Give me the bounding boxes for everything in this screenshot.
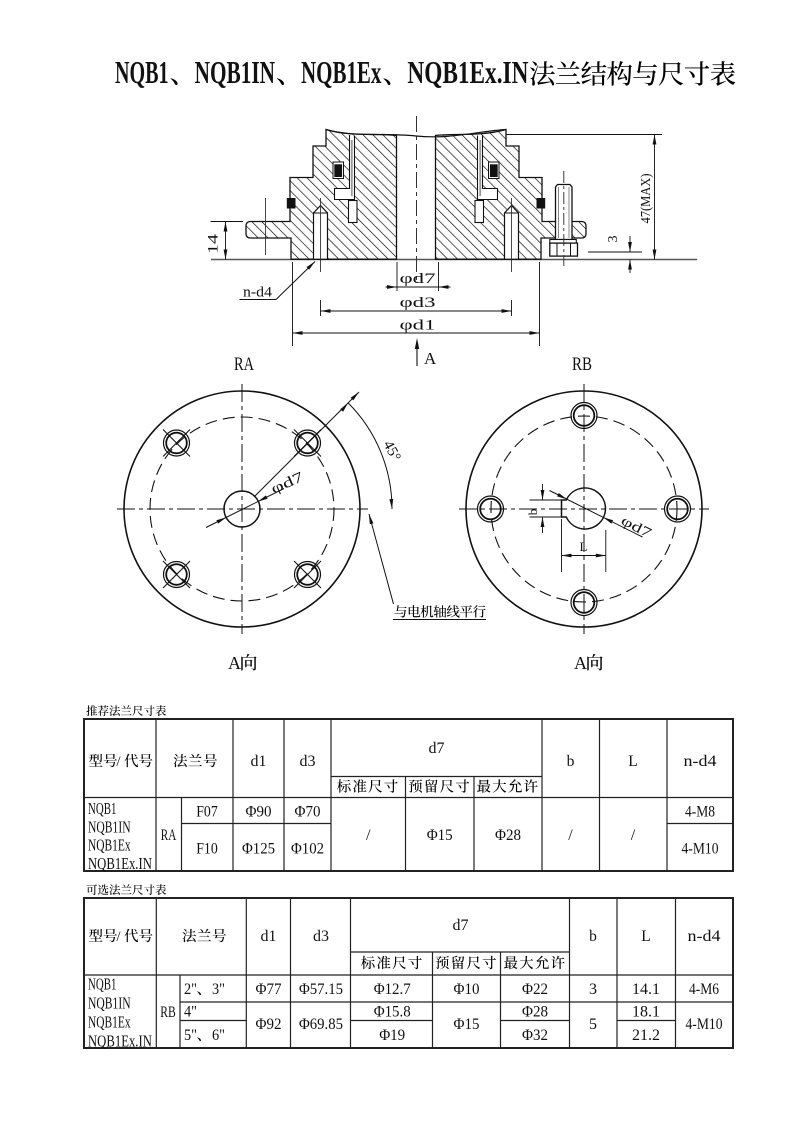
svg-text:4-M8: 4-M8 — [685, 804, 715, 821]
svg-text:Φ70: Φ70 — [295, 804, 321, 821]
svg-text:φd3: φd3 — [400, 295, 436, 311]
svg-text:3": 3" — [212, 981, 225, 998]
svg-text:Φ28: Φ28 — [495, 827, 521, 844]
svg-text:4-M10: 4-M10 — [686, 1016, 723, 1033]
svg-text:/: / — [631, 827, 636, 844]
svg-text:φd1: φd1 — [400, 318, 436, 334]
svg-text:Φ102: Φ102 — [291, 841, 324, 858]
svg-text:5": 5" — [184, 1027, 197, 1044]
svg-text:14.1: 14.1 — [632, 981, 660, 998]
svg-text:Φ57.15: Φ57.15 — [299, 981, 343, 998]
svg-text:b: b — [567, 753, 575, 770]
svg-text:14: 14 — [206, 233, 222, 254]
svg-text:Φ15.8: Φ15.8 — [374, 1004, 411, 1021]
svg-text:b: b — [589, 928, 597, 945]
svg-text:NQB1IN: NQB1IN — [88, 817, 131, 836]
svg-text:L: L — [628, 753, 637, 770]
svg-text:d7: d7 — [453, 917, 469, 934]
svg-text:Φ32: Φ32 — [522, 1027, 548, 1044]
svg-text:d3: d3 — [300, 753, 316, 770]
svg-text:F07: F07 — [196, 804, 218, 821]
svg-text:18.1: 18.1 — [632, 1004, 660, 1021]
svg-text:n-d4: n-d4 — [243, 285, 273, 301]
svg-text:4-M10: 4-M10 — [682, 841, 719, 858]
svg-text:Φ15: Φ15 — [427, 827, 453, 844]
svg-text:n-d4: n-d4 — [688, 928, 721, 945]
svg-text:Φ90: Φ90 — [246, 804, 272, 821]
svg-text:Φ10: Φ10 — [454, 981, 480, 998]
svg-text:NQB1Ex.IN: NQB1Ex.IN — [88, 854, 152, 873]
svg-text:RA: RA — [234, 354, 254, 375]
svg-text:/: / — [568, 827, 573, 844]
svg-text:F10: F10 — [196, 841, 218, 858]
svg-text:d7: d7 — [429, 740, 445, 757]
svg-text:/: / — [366, 827, 371, 844]
svg-text:NQB1Ex: NQB1Ex — [88, 1013, 131, 1032]
svg-text:Φ12.7: Φ12.7 — [374, 981, 411, 998]
svg-text:NQB1Ex.IN: NQB1Ex.IN — [88, 1032, 152, 1051]
svg-text:Φ69.85: Φ69.85 — [299, 1016, 343, 1033]
svg-text:d1: d1 — [261, 928, 277, 945]
svg-text:RB: RB — [160, 1004, 176, 1021]
svg-text:n-d4: n-d4 — [684, 753, 717, 770]
svg-text:A: A — [574, 653, 587, 673]
svg-text:Φ22: Φ22 — [522, 981, 548, 998]
svg-text:21.2: 21.2 — [632, 1027, 660, 1044]
svg-text:d1: d1 — [251, 753, 267, 770]
svg-text:L: L — [641, 928, 650, 945]
svg-text:RB: RB — [572, 354, 592, 375]
svg-text:3: 3 — [606, 236, 621, 243]
svg-text:6": 6" — [212, 1027, 225, 1044]
svg-text:Φ125: Φ125 — [242, 841, 275, 858]
svg-text:NQB1Ex: NQB1Ex — [88, 836, 131, 855]
svg-text:3: 3 — [589, 981, 597, 998]
svg-text:Φ15: Φ15 — [454, 1016, 480, 1033]
svg-text:b: b — [525, 509, 540, 516]
svg-text:Φ92: Φ92 — [256, 1016, 282, 1033]
svg-text:NQB1Ex.IN: NQB1Ex.IN — [407, 54, 528, 90]
svg-text:φd7: φd7 — [400, 271, 437, 287]
svg-text:A: A — [424, 349, 437, 368]
svg-text:4-M6: 4-M6 — [689, 981, 719, 998]
svg-text:RA: RA — [161, 827, 177, 844]
svg-text:47(MAX): 47(MAX) — [639, 173, 654, 223]
svg-text:NQB1: NQB1 — [115, 54, 169, 90]
svg-text:Φ28: Φ28 — [522, 1004, 548, 1021]
svg-text:NQB1Ex: NQB1Ex — [301, 54, 381, 90]
svg-text:NQB1: NQB1 — [88, 799, 116, 818]
svg-text:A: A — [228, 653, 241, 673]
svg-text:NQB1IN: NQB1IN — [88, 994, 131, 1013]
svg-text:Φ77: Φ77 — [256, 981, 282, 998]
svg-text:4": 4" — [184, 1004, 197, 1021]
svg-text:d3: d3 — [313, 928, 329, 945]
svg-text:Φ19: Φ19 — [379, 1027, 405, 1044]
svg-text:L: L — [580, 539, 588, 554]
svg-text:NQB1IN: NQB1IN — [195, 54, 275, 90]
svg-text:NQB1: NQB1 — [88, 975, 116, 994]
svg-text:5: 5 — [589, 1016, 597, 1033]
svg-text:2": 2" — [184, 981, 197, 998]
